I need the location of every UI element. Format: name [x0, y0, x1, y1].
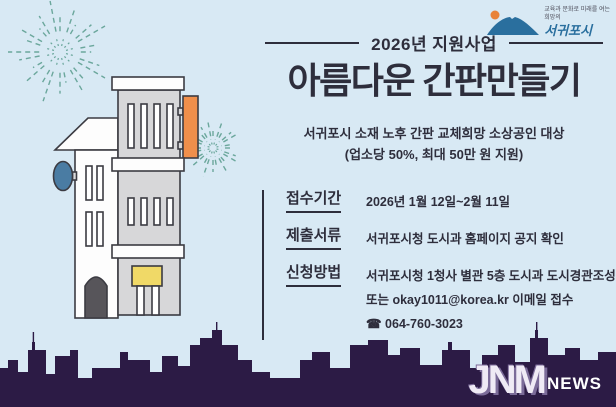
header-rule-left — [265, 42, 359, 44]
building-window — [167, 198, 173, 225]
sun-icon — [491, 11, 500, 20]
entrance-column — [137, 286, 144, 315]
header-rule-right — [509, 42, 603, 44]
building-illustration — [0, 0, 260, 340]
apply-email-line: 또는 okay1011@korea.kr 이메일 접수 — [366, 291, 616, 309]
city-slogan-line2: 희망의 — [544, 15, 610, 23]
hallasan-logo-icon — [486, 7, 540, 39]
yellow-sign — [132, 266, 162, 286]
section-value-documents: 서귀포시청 도시과 홈페이지 공지 확인 — [366, 227, 616, 254]
poster-title: 아름다운 간판만들기 — [258, 60, 610, 101]
poster-subtitle: 서귀포시 소재 노후 간판 교체희망 소상공인 대상 (업소당 50%, 최대 … — [258, 124, 610, 166]
building-window — [128, 104, 134, 148]
building-band — [112, 158, 184, 171]
mountain-icon — [487, 17, 539, 35]
house-window — [86, 166, 92, 200]
info-sections: 접수기간 2026년 1월 12일~2월 11일 제출서류 서귀포시청 도시과 … — [262, 190, 610, 340]
building-cap — [112, 77, 184, 90]
city-logo-text: 교육과 문화로 미래를 여는 희망의 서귀포시 — [544, 7, 610, 39]
section-label-apply: 신청방법 — [286, 264, 341, 287]
section-value-period: 2026년 1월 12일~2월 11일 — [366, 190, 616, 217]
building-band — [112, 245, 184, 258]
orange-sign — [183, 96, 198, 158]
antenna — [33, 332, 34, 342]
subtitle-line2: (업소당 50%, 최대 50만 원 지원) — [345, 147, 523, 162]
house-roof — [55, 118, 118, 150]
section-label-period: 접수기간 — [286, 190, 341, 213]
building-window — [167, 104, 173, 148]
building-window — [154, 198, 160, 225]
house-window — [97, 212, 103, 246]
building-window — [141, 198, 147, 225]
promotion-poster: 교육과 문화로 미래를 여는 희망의 서귀포시 2026년 지원사업 아름다운 … — [0, 0, 616, 407]
white-house — [54, 118, 119, 318]
blue-oval-sign — [54, 162, 73, 191]
city-slogan-line1: 교육과 문화로 미래를 여는 — [544, 7, 610, 15]
building-window — [141, 104, 147, 148]
program-header: 2026년 지원사업 — [371, 30, 497, 55]
period-line: 2026년 1월 12일~2월 11일 — [366, 193, 616, 211]
city-logo: 교육과 문화로 미래를 여는 희망의 서귀포시 — [486, 7, 610, 39]
antenna — [216, 322, 217, 330]
section-label-documents: 제출서류 — [286, 227, 341, 250]
building-window — [128, 198, 134, 225]
building-window — [154, 104, 160, 148]
jnm-news-label: NEWS — [547, 374, 602, 394]
subtitle-line1: 서귀포시 소재 노후 간판 교체희망 소상공인 대상 — [304, 126, 565, 141]
apply-visit-line: 서귀포시청 1청사 별관 5층 도시과 도시경관조성팀 방문, — [366, 267, 616, 285]
arched-door — [85, 277, 107, 318]
house-window — [97, 166, 103, 200]
documents-line: 서귀포시청 도시과 홈페이지 공지 확인 — [366, 230, 616, 248]
section-value-apply: 서귀포시청 1청사 별관 5층 도시과 도시경관조성팀 방문, 또는 okay1… — [366, 264, 616, 339]
entrance-column — [152, 286, 159, 315]
house-window — [86, 212, 92, 246]
city-name: 서귀포시 — [544, 23, 610, 39]
jnm-news-watermark: JNM NEWS — [469, 364, 602, 396]
gray-building — [112, 77, 198, 315]
phone-line: ☎ 064-760-3023 — [366, 315, 616, 333]
poster-content: 2026년 지원사업 아름다운 간판만들기 서귀포시 소재 노후 간판 교체희망… — [258, 30, 610, 340]
jnm-brand: JNM — [469, 364, 544, 396]
